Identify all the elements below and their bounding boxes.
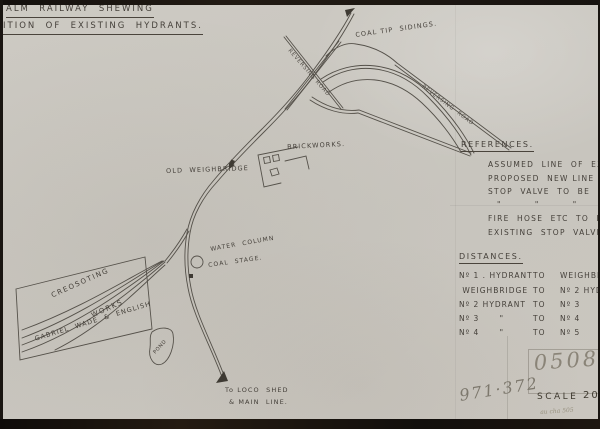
main-line-track <box>185 13 354 378</box>
plan-title-line1: ALM RAILWAY SHEWING <box>6 5 154 18</box>
distance-row: Nº 1 . HYDRANT TO WEIGHBRIDGE. <box>459 271 600 280</box>
distance-dest: Nº 5 " <box>560 328 600 337</box>
distance-to-word: TO <box>533 328 560 337</box>
distance-from: Nº 2 HYDRANT <box>459 300 533 309</box>
reference-line: ASSUMED LINE OF EXISTING M <box>488 160 600 169</box>
water-column-symbol <box>191 256 203 268</box>
ref-number-handwritten: 0508 <box>533 346 600 375</box>
distance-to-word: TO <box>533 271 560 280</box>
distance-to-word: TO <box>533 286 560 295</box>
distance-row: Nº 4 " TO Nº 5 " <box>459 328 600 337</box>
distance-to-word: TO <box>533 300 560 309</box>
coal-stage-marker <box>189 274 193 278</box>
reversing-road-track <box>326 44 511 150</box>
distance-row: Nº 2 HYDRANT TO Nº 3 " <box>459 300 600 309</box>
references-heading: REFERENCES. <box>461 140 534 152</box>
reference-line: EXISTING STOP VALVE TO BE <box>488 228 600 237</box>
main-line-south-arrowhead-icon <box>216 371 228 383</box>
distance-dest: WEIGHBRIDGE. <box>560 271 600 280</box>
reference-line: FIRE HOSE ETC TO BE KEPT H <box>488 214 600 223</box>
brickworks-building-outline <box>258 147 309 187</box>
reference-line: PROPOSED NEW LINE TO KEEP PO <box>488 174 600 183</box>
loco-shed-label-line1: To LOCO SHED <box>225 387 289 394</box>
scan-border-bottom <box>0 419 600 429</box>
scale-label: SCALE <box>537 392 578 402</box>
reference-line: STOP VALVE TO BE FITTED HERE <box>488 187 600 196</box>
distance-from: Nº 3 " <box>459 314 533 323</box>
distance-dest: Nº 4 " <box>560 314 600 323</box>
distance-row: WEIGHBRIDGE TO Nº 2 HYDRANT <box>459 286 600 295</box>
distance-to-word: TO <box>533 314 560 323</box>
distance-from: WEIGHBRIDGE <box>459 286 533 295</box>
loco-shed-label-line2: & MAIN LINE. <box>229 399 288 406</box>
distance-dest: Nº 3 " <box>560 300 600 309</box>
plan-title-line2: ITION OF EXISTING HYDRANTS. <box>3 22 203 35</box>
distances-heading: DISTANCES. <box>459 252 523 264</box>
reference-ditto-line: " " " " <box>497 200 600 209</box>
distance-row: Nº 3 " TO Nº 4 " <box>459 314 600 323</box>
scan-border-left <box>0 0 3 429</box>
distance-from: Nº 4 " <box>459 328 533 337</box>
distance-dest: Nº 2 HYDRANT <box>560 286 600 295</box>
scan-border-top <box>0 0 600 5</box>
distance-from: Nº 1 . HYDRANT <box>459 271 533 280</box>
scanned-railway-plan: ALM RAILWAY SHEWING ITION OF EXISTING HY… <box>0 0 600 429</box>
